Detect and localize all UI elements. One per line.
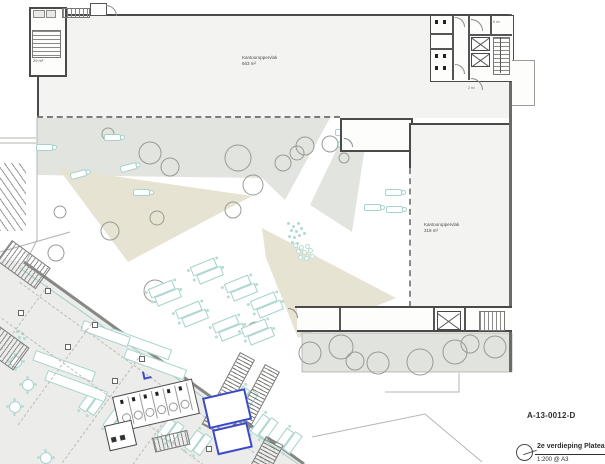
chair: [52, 456, 55, 459]
bench: [36, 144, 53, 151]
equipment: [111, 437, 117, 443]
balcony: [512, 60, 535, 106]
chair: [144, 291, 148, 295]
stool-dot: [298, 234, 301, 237]
wc-symbol: [435, 20, 438, 24]
core-wall: [468, 34, 512, 36]
chair: [85, 414, 89, 418]
bench: [133, 189, 150, 196]
stool-dot: [290, 229, 293, 232]
entry-steps: [62, 8, 90, 18]
stool-dot: [288, 235, 291, 238]
chair: [192, 278, 196, 282]
stall-door-arc: [168, 402, 179, 413]
chair: [243, 339, 247, 343]
round-table: [40, 452, 52, 464]
chair: [26, 376, 29, 379]
stool-dot: [302, 250, 307, 255]
stool-dot: [304, 256, 309, 261]
wc-symbol: [178, 386, 182, 391]
chair: [173, 278, 177, 282]
office-main-name: Kantooroppervlak: [242, 55, 277, 61]
elevator-shaft: [471, 37, 490, 51]
office-wing-floor: [411, 125, 509, 307]
chair: [252, 312, 256, 316]
stool-dot: [292, 225, 295, 228]
wc-symbol: [132, 397, 136, 402]
chair: [221, 265, 225, 269]
chair: [150, 300, 154, 304]
chair: [249, 273, 253, 277]
stool-dot: [293, 243, 298, 248]
chair: [206, 308, 210, 312]
stall-door-arc: [180, 399, 191, 410]
chair: [13, 413, 16, 416]
stool-dot: [295, 230, 298, 233]
chair: [237, 313, 241, 317]
core-landing-area-label: 2 m²: [468, 86, 475, 91]
bench: [104, 134, 121, 141]
drawing-number: A-13-0012-D: [527, 411, 575, 420]
core-wall: [490, 15, 492, 35]
chair: [200, 299, 204, 303]
core-wall: [430, 48, 452, 50]
chair: [177, 321, 181, 325]
core-wall: [464, 308, 466, 332]
core-stair: [493, 37, 510, 75]
wing-curtain-dashed: [409, 168, 411, 307]
wc-symbol: [435, 54, 438, 58]
wc-symbol: [443, 20, 446, 24]
office-wing-name: Kantooroppervlak: [424, 222, 459, 228]
chair: [34, 383, 37, 386]
fixture: [46, 10, 56, 18]
wc-symbol: [167, 389, 171, 394]
chair: [275, 290, 279, 294]
desk-cluster: [174, 297, 210, 329]
chair: [266, 317, 270, 321]
chair: [37, 456, 40, 459]
wc-symbol: [443, 54, 446, 58]
chair: [198, 426, 202, 430]
chair: [257, 438, 261, 442]
chair: [186, 269, 190, 273]
wc-symbol: [120, 400, 124, 405]
chair: [26, 391, 29, 394]
round-table: [22, 379, 34, 391]
core-wall: [433, 308, 435, 332]
chair: [288, 424, 292, 428]
stool-dot: [287, 222, 290, 225]
stool-dot: [308, 248, 313, 253]
wc-symbol: [155, 392, 159, 397]
chair: [264, 410, 268, 414]
drawing-scale: 1:200 @ A3: [537, 457, 568, 463]
bench: [364, 204, 381, 211]
chair: [22, 360, 25, 363]
stool-dot: [293, 236, 296, 239]
chair: [44, 449, 47, 452]
chair: [226, 295, 230, 299]
chair: [246, 303, 250, 307]
stool-dot: [310, 254, 315, 259]
stool-dot: [297, 222, 300, 225]
chair: [77, 409, 81, 413]
stall-door-arc: [156, 404, 167, 415]
office-main-area: 663 m²: [242, 61, 277, 67]
core-wall: [452, 15, 454, 80]
fixture: [33, 10, 45, 18]
chair: [208, 326, 212, 330]
desk-cluster: [147, 276, 183, 308]
core-wall: [468, 15, 470, 80]
stairwell-area-label: 29 m²: [33, 58, 43, 63]
elevator-shaft: [437, 311, 461, 330]
drawing-title: 2e verdieping Plateau: [537, 443, 605, 450]
title-block: A-13-0012-D 2e verdieping Plateau 1:200 …: [505, 405, 605, 464]
round-table: [9, 401, 21, 413]
office-main-label: Kantooroppervlak 663 m²: [242, 55, 277, 67]
wing-stair: [479, 311, 505, 331]
equipment: [120, 435, 126, 441]
desk-cluster: [189, 254, 225, 286]
core-room-area-label: 8 m²: [493, 20, 500, 25]
wing-wall-top: [411, 123, 509, 125]
north-symbol: [516, 444, 533, 461]
wc-symbol: [435, 66, 438, 70]
chair: [19, 383, 22, 386]
bench: [69, 169, 87, 180]
stool-dot: [300, 227, 303, 230]
chair: [171, 312, 175, 316]
stool-dot: [303, 232, 306, 235]
elevator-shaft: [471, 53, 490, 67]
stairwell-treads: [32, 30, 61, 58]
stool-dot: [23, 337, 26, 340]
wc-symbol: [143, 394, 147, 399]
wing-wall-left: [409, 123, 411, 168]
chair: [215, 256, 219, 260]
column-marker: [206, 446, 212, 452]
column-marker: [112, 378, 118, 384]
chair: [255, 282, 259, 286]
curtain-wall-dashed: [37, 116, 340, 118]
column-marker: [65, 344, 71, 350]
core-wall: [430, 33, 452, 35]
floor-plan-canvas: 29 m² 8 m² 2 m² Kantooroppervlak 663 m²: [0, 0, 605, 464]
office-wing-label: Kantooroppervlak 318 m²: [424, 222, 459, 234]
bench: [385, 189, 402, 196]
office-wing-area: 318 m²: [424, 228, 459, 234]
roof-box: [90, 3, 107, 16]
core-wall: [339, 308, 341, 332]
chair: [281, 452, 285, 456]
bench: [386, 206, 403, 213]
title-rule: [535, 454, 605, 455]
stall-door-arc: [133, 410, 144, 421]
chair: [214, 335, 218, 339]
stool-dot: [18, 336, 21, 339]
column-marker: [18, 310, 24, 316]
chair: [179, 287, 183, 291]
chair: [220, 286, 224, 290]
chair: [281, 299, 285, 303]
stall-door-arc: [145, 407, 156, 418]
chair: [272, 326, 276, 330]
wc-symbol: [443, 66, 446, 70]
stool-dot: [296, 249, 301, 254]
chair: [13, 398, 16, 401]
chair: [244, 382, 248, 386]
bench: [119, 162, 137, 173]
chair: [6, 405, 9, 408]
desk-cluster: [240, 315, 276, 347]
stair-centerline: [500, 37, 501, 73]
stool-dot: [298, 255, 303, 260]
chair: [21, 405, 24, 408]
louver-canopy: [0, 163, 26, 231]
